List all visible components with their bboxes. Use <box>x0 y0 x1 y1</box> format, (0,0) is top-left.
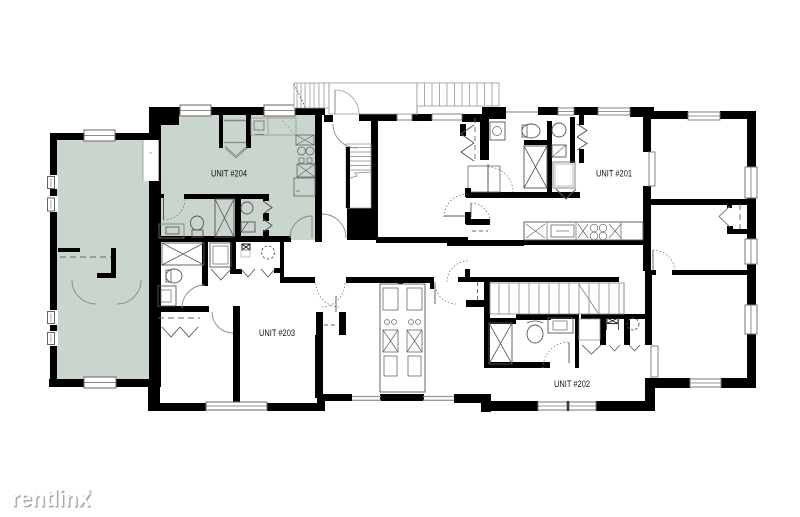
svg-text:UNIT #204: UNIT #204 <box>211 169 247 180</box>
svg-text:UNIT #203: UNIT #203 <box>259 328 295 339</box>
svg-text:rentlinx: rentlinx <box>11 485 90 511</box>
svg-text:UNIT #202: UNIT #202 <box>554 379 590 390</box>
svg-text:UNIT #201: UNIT #201 <box>596 169 632 180</box>
